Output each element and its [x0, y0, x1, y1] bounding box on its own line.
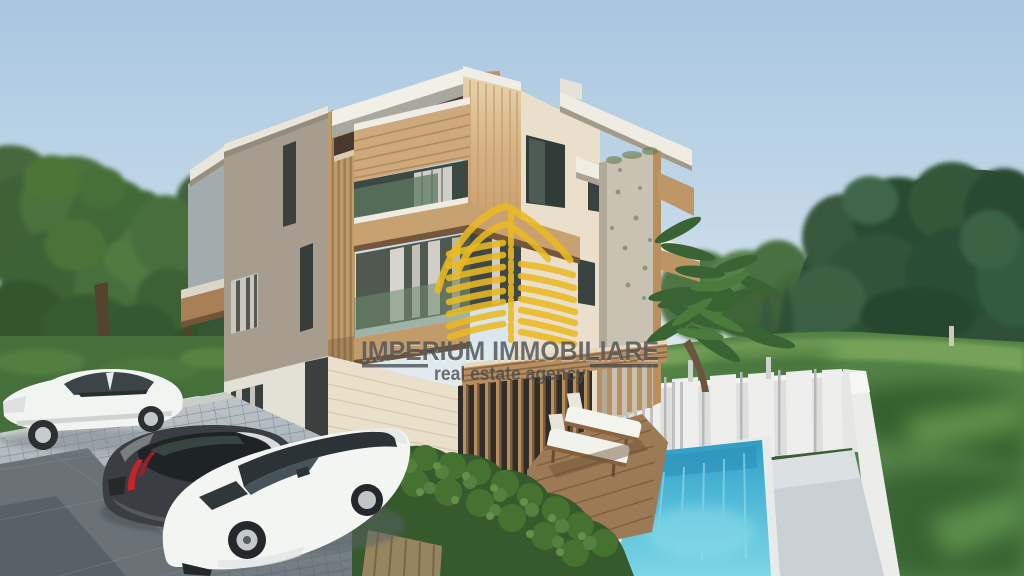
svg-text:real estate agency: real estate agency [434, 364, 586, 385]
svg-text:IMPERIUM IMMOBILIARE: IMPERIUM IMMOBILIARE [361, 336, 659, 366]
